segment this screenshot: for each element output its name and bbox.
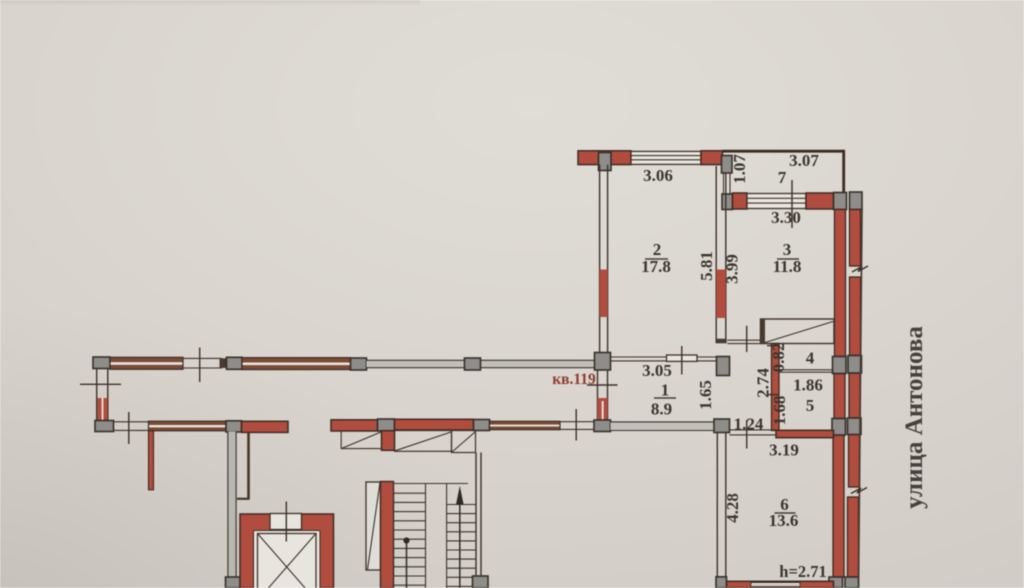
svg-text:3.06: 3.06: [643, 166, 673, 185]
svg-text:7: 7: [778, 168, 787, 187]
svg-text:3.19: 3.19: [769, 441, 799, 460]
svg-text:5: 5: [806, 396, 815, 415]
svg-text:3.30: 3.30: [771, 208, 801, 227]
svg-text:h=2.71: h=2.71: [779, 562, 826, 581]
svg-text:3.05: 3.05: [642, 361, 672, 380]
svg-text:1: 1: [661, 381, 670, 400]
svg-text:1.07: 1.07: [730, 154, 749, 184]
svg-text:17.8: 17.8: [641, 257, 671, 276]
svg-text:8.9: 8.9: [651, 400, 672, 419]
svg-text:3.07: 3.07: [789, 151, 819, 170]
svg-text:1.68: 1.68: [770, 396, 789, 426]
svg-text:улица Антонова: улица Антонова: [901, 326, 928, 509]
svg-text:13.6: 13.6: [769, 511, 799, 530]
svg-text:11.8: 11.8: [773, 257, 802, 276]
svg-text:4: 4: [806, 349, 815, 368]
svg-text:кв.119: кв.119: [552, 371, 596, 388]
svg-text:0.82: 0.82: [769, 343, 788, 373]
svg-text:5.81: 5.81: [697, 251, 716, 281]
svg-text:3.99: 3.99: [723, 254, 742, 284]
svg-text:1.86: 1.86: [793, 376, 823, 395]
svg-text:2.74: 2.74: [754, 368, 773, 398]
svg-text:1.24: 1.24: [734, 415, 764, 434]
svg-text:4.28: 4.28: [723, 493, 742, 523]
svg-text:1.65: 1.65: [696, 380, 715, 410]
